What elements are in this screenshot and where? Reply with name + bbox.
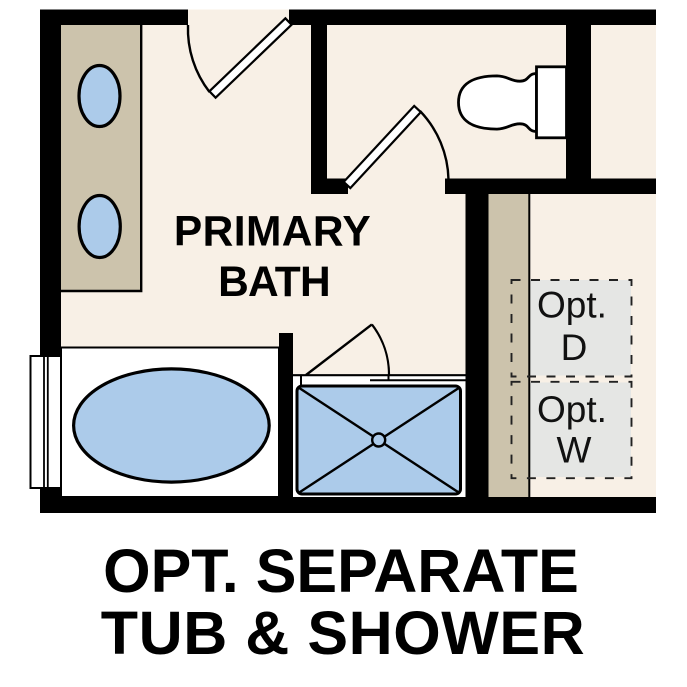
svg-text:PRIMARY: PRIMARY <box>174 209 371 256</box>
svg-text:W: W <box>557 430 592 471</box>
svg-text:OPT. SEPARATE: OPT. SEPARATE <box>103 537 579 605</box>
svg-text:D: D <box>561 327 588 368</box>
svg-text:BATH: BATH <box>218 259 330 306</box>
svg-text:Opt.: Opt. <box>537 389 607 430</box>
svg-text:Opt.: Opt. <box>537 285 607 326</box>
svg-text:TUB & SHOWER: TUB & SHOWER <box>101 599 585 667</box>
